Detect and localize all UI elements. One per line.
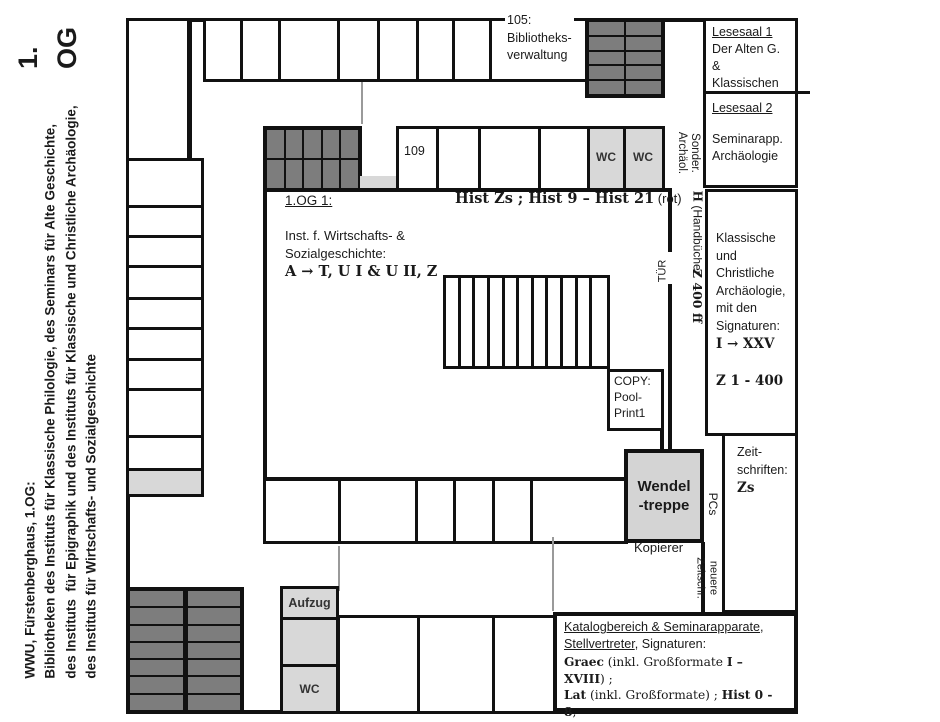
door-line: [361, 82, 363, 124]
room: [278, 18, 340, 82]
wc-label: WC: [300, 682, 320, 696]
shelf-bay: [563, 278, 578, 366]
shelf-bay: [461, 278, 476, 366]
stair-tread: [129, 625, 184, 642]
katalog-line3-mid: (inkl. Großformate: [604, 655, 727, 669]
institute-signature: A → T, U I & U II, Z: [285, 263, 437, 282]
spiral-staircase-label: Wendel -treppe: [637, 477, 690, 516]
room: [126, 435, 204, 471]
shelf-bay: [490, 278, 505, 366]
klassische-signature-1: I → XXV: [716, 335, 789, 354]
door-line: [552, 537, 554, 611]
katalog-line2-rest: , Signaturen:: [635, 637, 706, 651]
staircase-top: [585, 18, 665, 98]
pcs-label: PCs: [705, 493, 719, 516]
building-caption: WWU, Fürstenberghaus, 1.OG: Bibliotheken…: [21, 105, 102, 678]
room-lesesaal1: Lesesaal 1 Der Alten G. & Klassischen Ph…: [703, 18, 798, 94]
zeitschriften-body: Zeit- schriften:: [737, 444, 789, 479]
room: [453, 478, 495, 544]
institute-label: Inst. f. Wirtschafts- & Sozialgeschichte…: [285, 227, 405, 263]
room-zeitschriften: Zeit- schriften: Zs: [722, 433, 798, 613]
handbuecher-rest: (Handbücher: [691, 202, 705, 275]
shelf-cell: [285, 159, 304, 189]
shelf-cell: [303, 159, 322, 189]
room: [492, 478, 533, 544]
room-gray: [280, 617, 339, 667]
stair-tread: [129, 694, 184, 711]
stair-tread: [187, 676, 241, 693]
room-copy-label: COPY: Pool- Print1: [614, 373, 651, 422]
room-lesesaal2: Lesesaal 2 Seminarapp. Archäologie: [703, 91, 798, 188]
wc-label: WC: [633, 150, 653, 166]
katalog-line2: Stellvertreter, Signaturen:: [564, 636, 787, 653]
shelf-bay: [519, 278, 534, 366]
room: [126, 235, 204, 268]
wc-label: WC: [596, 150, 616, 166]
room: [126, 388, 204, 438]
shelf-bay: [475, 278, 490, 366]
inner-wall: [187, 18, 192, 162]
shelf-bay: [592, 278, 607, 366]
floor-plan: 1. OG WWU, Fürstenberghaus, 1.OG: Biblio…: [0, 0, 940, 722]
shelf-cell: [303, 129, 322, 159]
katalog-line1: Katalogbereich & Seminarapparate,: [564, 619, 787, 636]
room: [203, 18, 243, 82]
room: [126, 18, 190, 162]
stair-tread: [625, 80, 662, 95]
stair-tread: [129, 642, 184, 659]
kopierer-label: Kopierer: [634, 540, 683, 557]
katalog-line2-underlined: Stellvertreter: [564, 637, 635, 651]
stair-tread: [187, 659, 241, 676]
shelf-bay: [534, 278, 549, 366]
klassische-signature-2: Z 1 - 400: [716, 372, 789, 391]
room: [492, 615, 556, 714]
shelf-bay: [505, 278, 520, 366]
room: [263, 478, 341, 544]
room: [337, 615, 420, 714]
room-aufzug: Aufzug: [280, 586, 339, 620]
katalog-sig-graec: Graec: [564, 655, 604, 669]
room: [126, 205, 204, 238]
room: [337, 18, 380, 82]
katalog-line3: Graec (inkl. Großformate I – XVIII) ;: [564, 654, 787, 688]
handbuecher-label: H (Handbücher: [676, 177, 717, 274]
room: [338, 478, 418, 544]
shelf-cell: [266, 159, 285, 189]
shelf-cell: [266, 129, 285, 159]
lesesaal1-title: Lesesaal 1: [712, 25, 772, 39]
hall-title: 1.OG 1:: [285, 192, 332, 210]
room: [478, 126, 541, 192]
room: [126, 297, 204, 330]
stair-tread: [625, 65, 662, 80]
katalog-line4: Lat (inkl. Großformate) ; Hist 0 - 8,: [564, 687, 787, 721]
katalog-line1-rest: ,: [760, 620, 764, 634]
katalog-line3-end: ) ;: [600, 672, 613, 686]
stair-tread: [187, 694, 241, 711]
shelf-cell: [322, 129, 341, 159]
room: [240, 18, 281, 82]
shelf-block: [263, 126, 362, 192]
hall-signature: Hist Zs ; Hist 9 – Hist 21 (rot): [455, 190, 682, 209]
room: [126, 265, 204, 300]
room: [417, 615, 495, 714]
shelf-bay: [446, 278, 461, 366]
room: [452, 18, 492, 82]
stair-tread: [625, 21, 662, 36]
stair-tread: [187, 607, 241, 624]
shelf-cell: [340, 159, 359, 189]
room-gray: [126, 468, 204, 497]
room: [530, 478, 628, 544]
hall-signature-bold: Hist Zs ; Hist 9 – Hist 21: [455, 190, 654, 207]
stair-tread: [129, 676, 184, 693]
katalog-sig-lat: Lat: [564, 688, 586, 702]
room: [415, 478, 456, 544]
staircase-bottom: [184, 587, 244, 714]
stair-tread: [129, 607, 184, 624]
stair-tread: [625, 36, 662, 51]
stair-tread: [588, 21, 625, 36]
katalog-box: Katalogbereich & Seminarapparate, Stellv…: [553, 612, 798, 712]
room-klassische-archaeologie: Klassische und Christliche Archäologie, …: [705, 189, 798, 436]
stair-tread: [129, 590, 184, 607]
stair-tread: [187, 642, 241, 659]
room: [126, 358, 204, 391]
shelf-cell: [322, 159, 341, 189]
staircase-bottom: [126, 587, 187, 714]
stair-tread: [588, 65, 625, 80]
neuere-zeitschr-label: neuere Zeitschr.: [694, 557, 719, 599]
shelf-bay: [548, 278, 563, 366]
handbuecher-h: H: [691, 191, 705, 202]
wall-tick: [798, 91, 810, 94]
shelf-cell: [285, 129, 304, 159]
bookshelf-range: [443, 275, 610, 369]
katalog-line1-underlined: Katalogbereich & Seminarapparate: [564, 620, 760, 634]
sonder-archaeol-label: Sonder. Archäol.: [675, 132, 701, 174]
stair-tread: [129, 659, 184, 676]
katalog-line4-end: ,: [572, 705, 576, 719]
klassische-body: Klassische und Christliche Archäologie, …: [716, 230, 789, 335]
lesesaal2-body: Seminarapp. Archäologie: [712, 131, 789, 165]
room: [416, 18, 455, 82]
room: [126, 158, 204, 208]
room: [436, 126, 481, 192]
zeitschriften-signature: Zs: [737, 479, 789, 498]
room: [538, 126, 590, 192]
z400-label: Z 400 ff: [690, 269, 704, 323]
aufzug-label: Aufzug: [288, 596, 330, 610]
shelf-cell: [340, 129, 359, 159]
shelf-bay: [578, 278, 593, 366]
katalog-line4-mid: (inkl. Großformate) ;: [586, 688, 722, 702]
room-109-label: 109: [404, 143, 425, 159]
stair-tread: [588, 36, 625, 51]
spiral-staircase: Wendel -treppe: [624, 449, 704, 543]
stair-tread: [625, 51, 662, 66]
stair-tread: [588, 80, 625, 95]
door-line: [338, 546, 340, 591]
room-wc: WC: [280, 664, 339, 714]
floor-title: 1. OG: [9, 27, 87, 69]
tuer-label: TÜR: [657, 260, 670, 283]
stair-tread: [187, 625, 241, 642]
lesesaal2-title: Lesesaal 2: [712, 101, 772, 115]
stair-tread: [588, 51, 625, 66]
room: [126, 327, 204, 361]
room-bibliotheksverwaltung-label: 105: Bibliotheks- verwaltung: [505, 12, 574, 65]
stair-tread: [187, 590, 241, 607]
room: [377, 18, 419, 82]
